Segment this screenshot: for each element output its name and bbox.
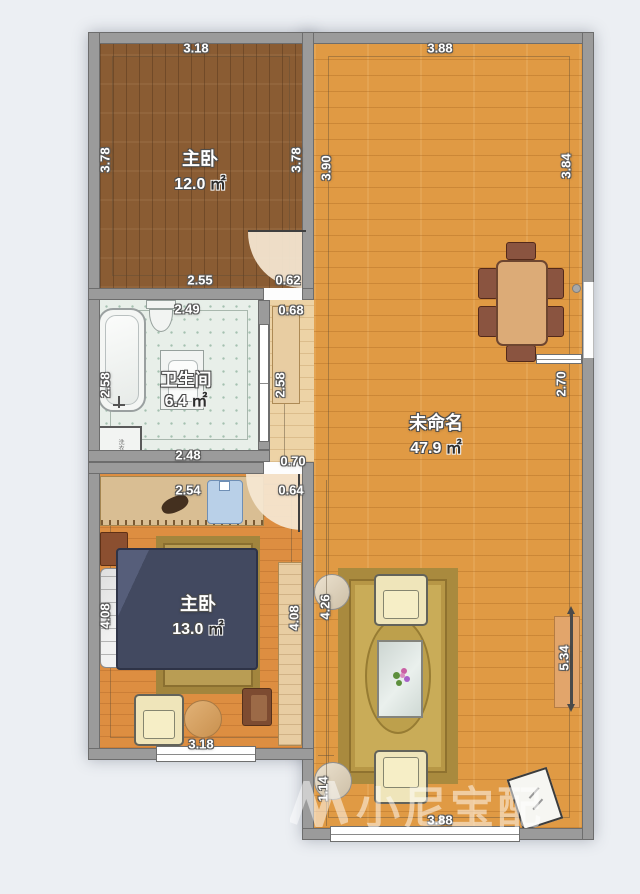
bedroom2-armchair: [134, 694, 184, 746]
living-armchair-top: [374, 574, 428, 626]
dining-chair-top: [506, 242, 536, 260]
dim-bedroom1-door: 0.62: [275, 274, 300, 287]
bedroom1-name: 主卧: [182, 145, 218, 171]
measure-arrow-up: [567, 606, 575, 614]
living-armchair-bottom: [374, 750, 428, 804]
bathtub-faucet-icon: [118, 396, 120, 408]
bedroom2-area: 13.0 ㎡: [172, 615, 224, 639]
dim-bathroom-left: 2.58: [99, 372, 112, 397]
bedroom2-area-value: 13.0: [172, 621, 203, 638]
bedroom1-area-value: 12.0: [174, 176, 205, 193]
dim-living-bottom-left: 1.14: [317, 776, 330, 801]
measure-arrow-down: [567, 704, 575, 712]
living-bottom-window: [330, 826, 520, 842]
bedroom2-chair: [242, 688, 272, 726]
wall-right: [582, 32, 594, 840]
bedroom2-area-unit: ㎡: [208, 621, 224, 638]
dim-hall-right: 2.58: [274, 372, 287, 397]
doormat-mark: [532, 799, 543, 811]
dining-chair-left-2: [478, 306, 498, 337]
living-area: 47.9 ㎡: [410, 434, 462, 458]
bathroom-area-value: 6.4: [165, 393, 187, 410]
balcony-threshold: [536, 354, 582, 364]
door-stopper-dot: [572, 284, 581, 293]
bedroom2-chair-seat: [251, 695, 267, 721]
living-armchair-bottom-cushion: [383, 757, 419, 788]
dim-dining-opening: 2.70: [555, 371, 568, 396]
dim-living-mid-left: 4.26: [319, 594, 332, 619]
dim-living-left: 3.90: [320, 155, 333, 180]
dim-living-right-lower: 5.34: [558, 645, 571, 670]
dim-bathroom-top: 2.49: [174, 303, 199, 316]
coffee-table: [377, 640, 423, 718]
bedroom2-armchair-cushion: [143, 710, 175, 739]
dining-chair-left-1: [478, 268, 498, 299]
doormat-mark: [529, 787, 540, 799]
dining-table: [496, 260, 548, 346]
bathtub-faucet-icon-head: [113, 404, 125, 406]
wall-bedroom1-right: [302, 32, 314, 300]
dim-bedroom2-top: 2.54: [175, 484, 200, 497]
dim-bathroom-bottom: 2.48: [175, 449, 200, 462]
living-left-measure-tick: [318, 755, 334, 756]
living-area-unit: ㎡: [446, 440, 462, 457]
living-name: 未命名: [409, 409, 463, 435]
dim-living-right: 3.84: [560, 153, 573, 178]
bedroom1-door-opening: [264, 288, 302, 300]
dim-hall-bottom: 0.70: [280, 455, 305, 468]
flower-icon: [400, 673, 405, 678]
bathroom-area: 6.4 ㎡: [165, 387, 208, 411]
dim-bedroom2-window: 3.18: [188, 738, 213, 751]
dim-bedroom2-left: 4.08: [99, 603, 112, 628]
floorplan-canvas: 洗衣机: [0, 0, 640, 894]
bedroom2-round-table: [184, 700, 222, 738]
dim-living-bottom: 3.88: [427, 814, 452, 827]
bathroom-sliding-door: [259, 324, 269, 442]
flower-leaf-icon: [393, 672, 400, 679]
shirt-icon: [207, 480, 243, 524]
dining-chair-bottom: [506, 345, 536, 362]
flower-leaf-icon: [396, 680, 402, 686]
bedroom1-door-leaf: [248, 230, 306, 232]
bedroom2-side-cabinet: [278, 562, 302, 746]
balcony-opening: [583, 282, 594, 358]
bathroom-area-unit: ㎡: [191, 393, 207, 410]
bedroom2-name: 主卧: [180, 590, 216, 616]
shirt-collar: [219, 481, 230, 491]
wall-bedroom1-bottom-stub: [302, 288, 314, 300]
bedroom1-area: 12.0 ㎡: [174, 170, 226, 194]
living-area-value: 47.9: [410, 440, 441, 457]
dim-bedroom2-right: 4.08: [288, 605, 301, 630]
wall-bedroom1-bottom: [88, 288, 264, 300]
living-left-measure-line: [326, 480, 327, 826]
living-armchair-top-cushion: [383, 590, 419, 619]
flower-icon: [404, 676, 410, 682]
wall-bedroom2-right: [302, 462, 314, 840]
wall-bedroom2-top: [88, 462, 264, 474]
dim-living-top: 3.88: [427, 42, 452, 55]
dim-hall-top: 0.68: [278, 304, 303, 317]
dim-bedroom1-bottom: 2.55: [187, 274, 212, 287]
bedroom1-area-unit: ㎡: [210, 176, 226, 193]
dim-bedroom2-door: 0.64: [278, 484, 303, 497]
dim-bedroom1-left: 3.78: [99, 147, 112, 172]
toilet-tank: [146, 300, 176, 309]
dim-bedroom1-top: 3.18: [183, 42, 208, 55]
dim-bedroom1-right: 3.78: [290, 147, 303, 172]
wall-top: [88, 32, 594, 44]
